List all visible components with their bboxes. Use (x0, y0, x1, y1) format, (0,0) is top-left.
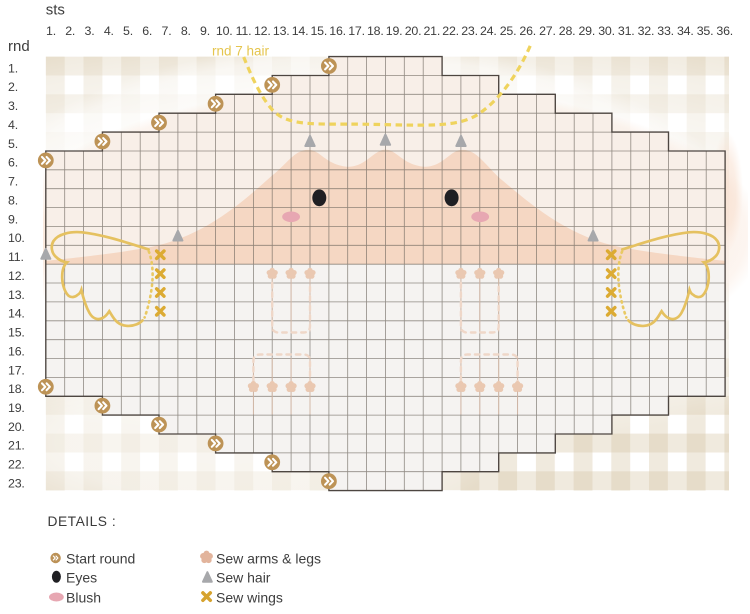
svg-text:Start round: Start round (66, 550, 135, 566)
svg-text:5.: 5. (8, 137, 18, 151)
svg-text:Eyes: Eyes (66, 569, 97, 585)
svg-text:22.: 22. (442, 24, 459, 38)
svg-text:12.: 12. (254, 24, 271, 38)
svg-text:16.: 16. (8, 344, 25, 358)
svg-text:36.: 36. (716, 24, 733, 38)
svg-text:30.: 30. (598, 24, 615, 38)
svg-text:8.: 8. (181, 24, 191, 38)
svg-text:21.: 21. (423, 24, 440, 38)
svg-text:Sew wings: Sew wings (216, 589, 283, 605)
svg-text:Sew arms & legs: Sew arms & legs (216, 550, 321, 566)
svg-text:5.: 5. (123, 24, 133, 38)
svg-text:19.: 19. (8, 401, 25, 415)
svg-text:29.: 29. (578, 24, 595, 38)
svg-text:9.: 9. (8, 212, 18, 226)
svg-text:rnd: rnd (8, 38, 30, 55)
svg-text:7.: 7. (8, 175, 18, 189)
svg-text:DETAILS :: DETAILS : (48, 514, 117, 529)
svg-text:13.: 13. (273, 24, 290, 38)
svg-text:17.: 17. (8, 363, 25, 377)
svg-text:rnd 7 hair: rnd 7 hair (212, 44, 270, 59)
svg-text:33.: 33. (657, 24, 674, 38)
svg-text:1.: 1. (8, 61, 18, 75)
svg-text:7.: 7. (162, 24, 172, 38)
svg-text:22.: 22. (8, 458, 25, 472)
svg-text:3.: 3. (85, 24, 95, 38)
svg-text:6.: 6. (8, 156, 18, 170)
svg-text:17.: 17. (348, 24, 365, 38)
svg-text:Blush: Blush (66, 589, 101, 605)
svg-text:Sew hair: Sew hair (216, 569, 271, 585)
svg-text:20.: 20. (8, 420, 25, 434)
svg-text:31.: 31. (618, 24, 635, 38)
svg-text:27.: 27. (539, 24, 556, 38)
svg-text:12.: 12. (8, 269, 25, 283)
svg-text:28.: 28. (559, 24, 576, 38)
svg-text:15.: 15. (310, 24, 327, 38)
svg-text:3.: 3. (8, 99, 18, 113)
svg-text:21.: 21. (8, 439, 25, 453)
svg-text:23.: 23. (8, 477, 25, 491)
svg-text:15.: 15. (8, 326, 25, 340)
svg-text:1.: 1. (46, 24, 56, 38)
svg-text:20.: 20. (405, 24, 422, 38)
svg-text:4.: 4. (8, 118, 18, 132)
svg-text:6.: 6. (142, 24, 152, 38)
svg-text:32.: 32. (638, 24, 655, 38)
svg-text:11.: 11. (236, 24, 252, 38)
svg-text:24.: 24. (480, 24, 497, 38)
svg-text:18.: 18. (8, 382, 25, 396)
svg-text:2.: 2. (65, 24, 75, 38)
svg-text:13.: 13. (8, 288, 25, 302)
svg-text:8.: 8. (8, 193, 18, 207)
svg-text:25.: 25. (500, 24, 517, 38)
svg-text:19.: 19. (386, 24, 403, 38)
svg-text:16.: 16. (329, 24, 346, 38)
svg-text:26.: 26. (519, 24, 536, 38)
svg-text:23.: 23. (461, 24, 478, 38)
svg-text:14.: 14. (292, 24, 309, 38)
svg-text:10.: 10. (216, 24, 233, 38)
svg-text:sts: sts (46, 2, 65, 19)
svg-text:2.: 2. (8, 80, 18, 94)
svg-text:18.: 18. (367, 24, 384, 38)
svg-text:9.: 9. (200, 24, 210, 38)
svg-text:14.: 14. (8, 307, 25, 321)
svg-text:35.: 35. (697, 24, 714, 38)
svg-text:10.: 10. (8, 231, 25, 245)
svg-text:11.: 11. (8, 250, 24, 264)
svg-text:4.: 4. (104, 24, 114, 38)
svg-text:34.: 34. (677, 24, 694, 38)
